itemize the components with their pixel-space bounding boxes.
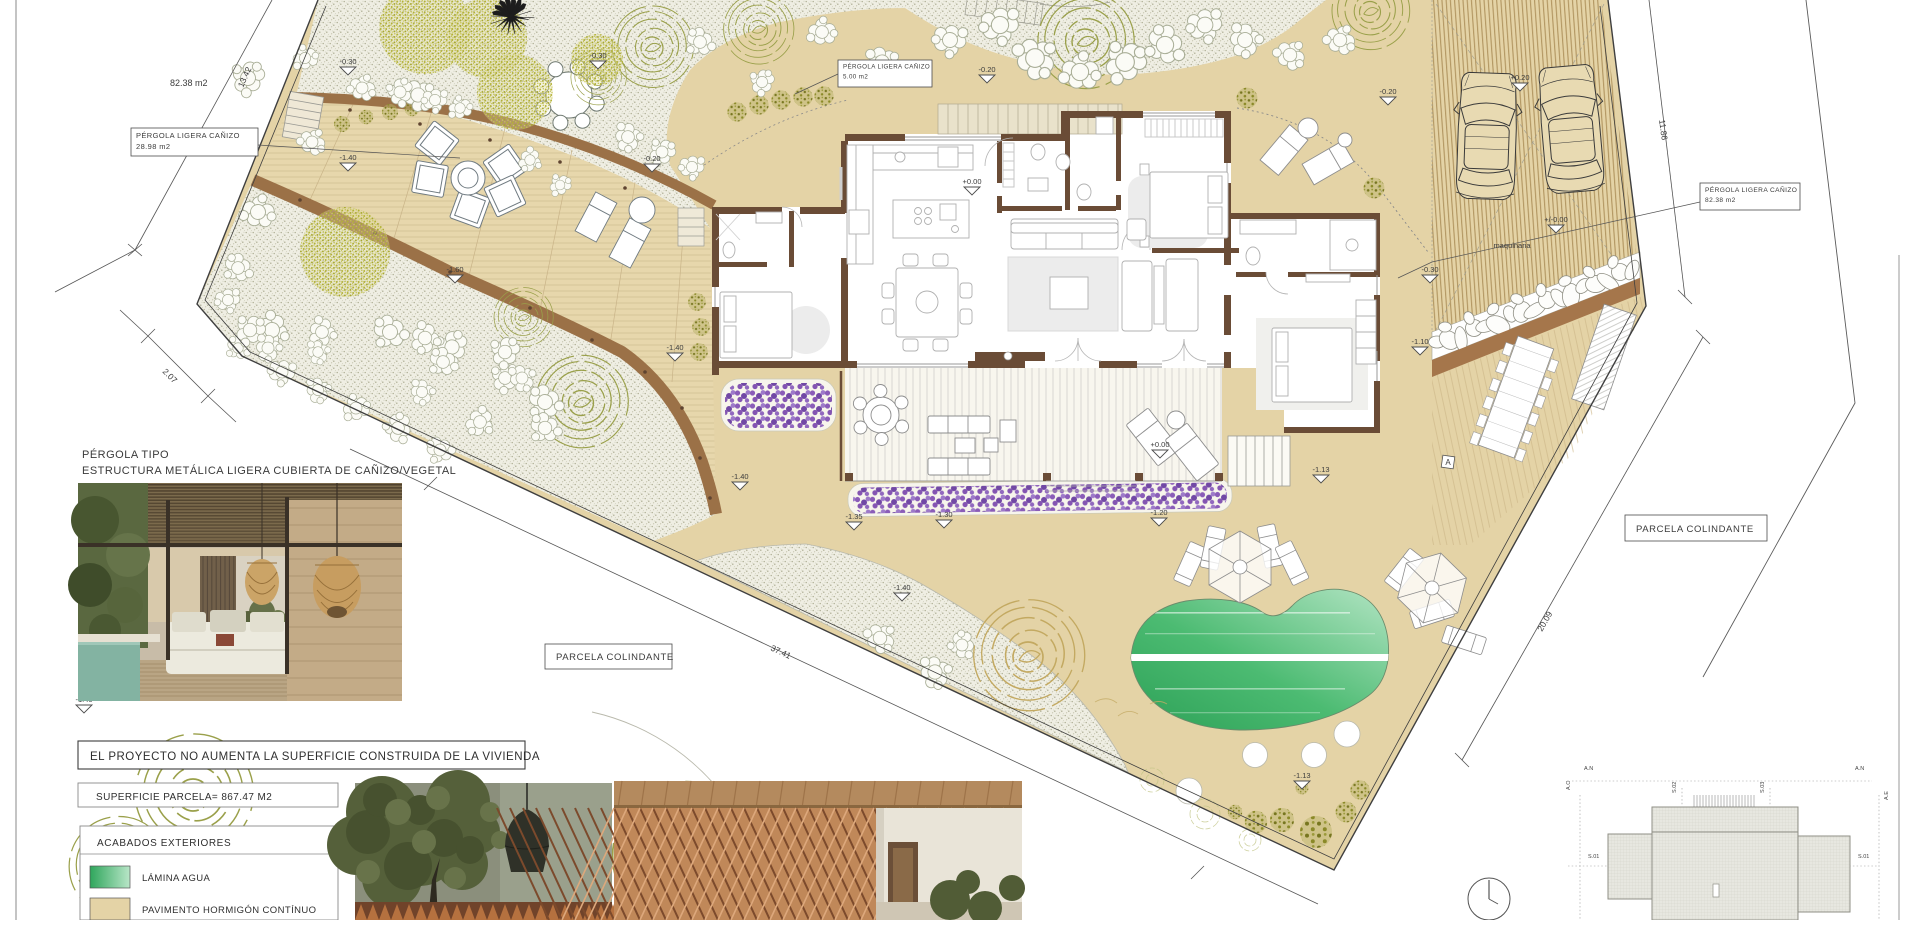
svg-text:S.01: S.01 [1858, 854, 1869, 860]
svg-text:A.N: A.N [1855, 766, 1864, 772]
svg-text:-1.40: -1.40 [339, 153, 356, 162]
svg-text:-0.20: -0.20 [643, 154, 660, 163]
svg-text:A: A [1445, 458, 1451, 467]
svg-text:-1.40: -1.40 [666, 343, 683, 352]
svg-text:PARCELA COLINDANTE: PARCELA COLINDANTE [556, 652, 674, 663]
svg-text:+0.20: +0.20 [1511, 73, 1530, 82]
svg-text:SUPERFICIE PARCELA= 867.47 M2: SUPERFICIE PARCELA= 867.47 M2 [96, 792, 272, 803]
svg-text:LÁMINA AGUA: LÁMINA AGUA [142, 873, 211, 884]
svg-text:-0.30: -0.30 [589, 51, 606, 60]
svg-text:-1.40: -1.40 [893, 583, 910, 592]
svg-text:5.00 m2: 5.00 m2 [843, 74, 868, 81]
svg-text:A.O: A.O [1566, 780, 1572, 790]
svg-text:S.03: S.03 [1760, 782, 1766, 793]
svg-text:-1.60: -1.60 [446, 265, 463, 274]
svg-text:A.N: A.N [1584, 766, 1593, 772]
svg-text:28.98 m2: 28.98 m2 [136, 142, 170, 151]
svg-text:PÉRGOLA LIGERA CAÑIZO: PÉRGOLA LIGERA CAÑIZO [136, 131, 240, 140]
svg-text:PARCELA COLINDANTE: PARCELA COLINDANTE [1636, 524, 1754, 535]
svg-text:-0.30: -0.30 [1421, 265, 1438, 274]
svg-text:82.38 m2: 82.38 m2 [1705, 197, 1736, 204]
svg-text:-0.20: -0.20 [1379, 87, 1396, 96]
svg-text:PÉRGOLA TIPO: PÉRGOLA TIPO [82, 448, 169, 461]
svg-text:-1.20: -1.20 [1150, 508, 1167, 517]
svg-text:-1.13: -1.13 [1312, 465, 1329, 474]
svg-text:A.E: A.E [1884, 791, 1890, 800]
svg-text:82.38 m2: 82.38 m2 [170, 78, 208, 88]
svg-text:-0.20: -0.20 [978, 65, 995, 74]
svg-text:maquinaria: maquinaria [1493, 241, 1531, 250]
svg-text:+0.00: +0.00 [1151, 440, 1170, 449]
svg-text:ACABADOS EXTERIORES: ACABADOS EXTERIORES [97, 838, 231, 849]
svg-text:PÉRGOLA LIGERA CAÑIZO: PÉRGOLA LIGERA CAÑIZO [1705, 185, 1797, 194]
svg-text:-1.35: -1.35 [845, 512, 862, 521]
svg-text:PÉRGOLA LIGERA CAÑIZO: PÉRGOLA LIGERA CAÑIZO [843, 64, 930, 71]
svg-text:+/-0.00: +/-0.00 [1544, 215, 1568, 224]
svg-text:PAVIMENTO HORMIGÓN CONTÍNUO: PAVIMENTO HORMIGÓN CONTÍNUO [142, 905, 316, 916]
svg-text:S.02: S.02 [1672, 782, 1678, 793]
svg-text:+0.00: +0.00 [963, 177, 982, 186]
svg-text:-0.30: -0.30 [339, 57, 356, 66]
svg-text:S.01: S.01 [1588, 854, 1599, 860]
svg-text:-1.30: -1.30 [935, 510, 952, 519]
svg-text:ESTRUCTURA METÁLICA LIGERA CUB: ESTRUCTURA METÁLICA LIGERA CUBIERTA DE C… [82, 464, 456, 477]
svg-text:-1.40: -1.40 [731, 472, 748, 481]
svg-text:-1.10: -1.10 [1411, 337, 1428, 346]
svg-text:EL PROYECTO NO AUMENTA LA SUPE: EL PROYECTO NO AUMENTA LA SUPERFICIE CON… [90, 751, 540, 763]
svg-text:-1.13: -1.13 [1293, 771, 1310, 780]
